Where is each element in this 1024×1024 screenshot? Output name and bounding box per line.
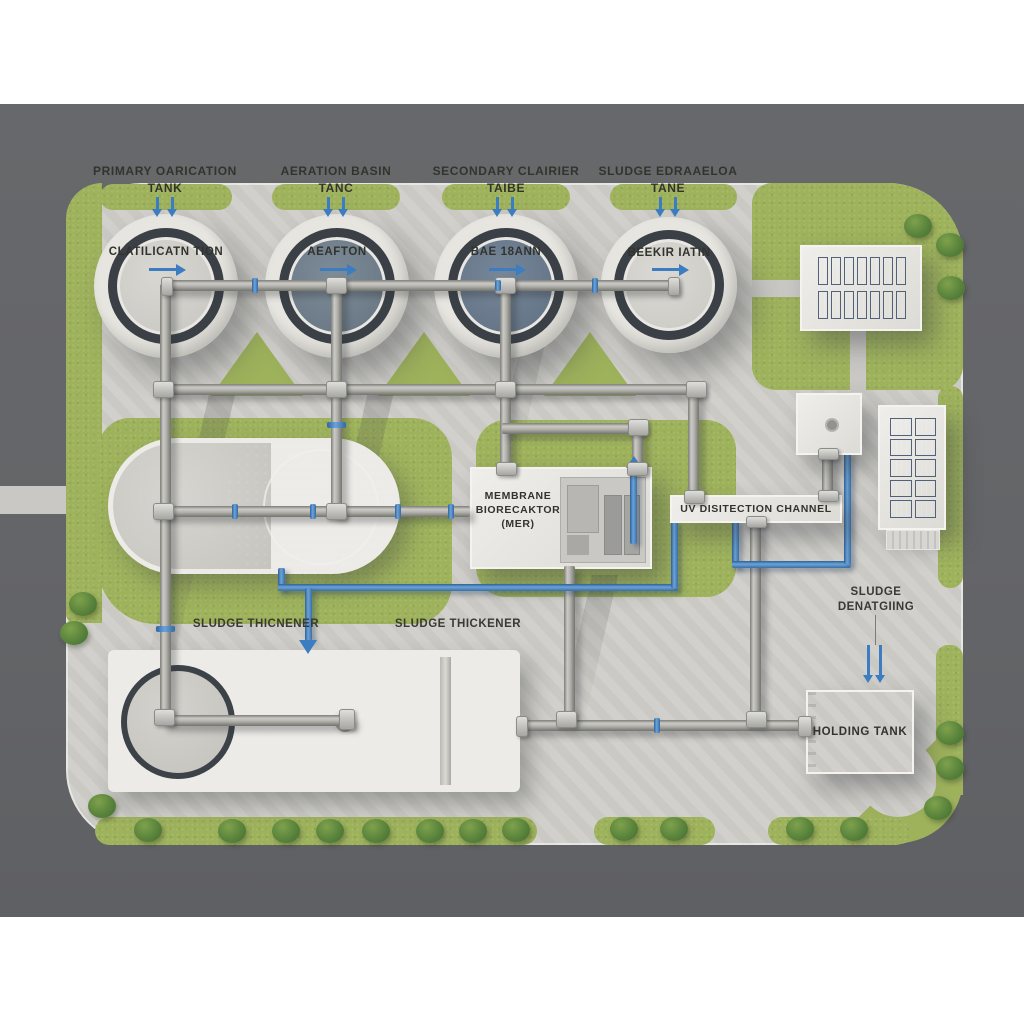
solar-panel [915, 418, 937, 436]
solar-panel [896, 257, 906, 285]
building-annex [886, 530, 940, 550]
bush-icon [459, 819, 487, 843]
label-line: TANK [148, 181, 183, 195]
bush-icon [936, 756, 964, 780]
pipe-joint [161, 277, 173, 296]
tank-label: BAE 18ANN [436, 246, 576, 258]
bush-icon [218, 819, 246, 843]
solar-panel [915, 480, 937, 498]
flow-arrow-right-icon [176, 264, 186, 276]
lawn-path-vertical [850, 330, 866, 392]
bush-icon [69, 592, 97, 616]
bush-icon [786, 817, 814, 841]
pipe-coupling [252, 278, 258, 293]
solar-building-north [800, 245, 922, 331]
uv-channel-label: UV DISITECTION CHANNEL [680, 503, 831, 515]
solar-panel [915, 459, 937, 477]
pipe-joint [686, 381, 707, 398]
bush-icon [134, 818, 162, 842]
label-line: SLUDGE [851, 586, 902, 598]
flow-arrow-right-icon [347, 264, 357, 276]
thickener-label-left: SLUDGE THICNENER [166, 618, 346, 630]
bush-icon [936, 721, 964, 745]
mbr-label: MEMBRANE BIORECAKTOR (MER) [474, 489, 562, 531]
mbr-membrane-cassette [604, 495, 622, 555]
membrane-bioreactor-unit: MEMBRANE BIORECAKTOR (MER) [470, 467, 652, 569]
solar-panel [818, 257, 828, 285]
solar-panel [890, 418, 912, 436]
solar-panel [915, 500, 937, 518]
pipe-joint [746, 516, 767, 528]
pipe-return-header [168, 384, 699, 395]
mbr-equipment-module [567, 535, 589, 555]
pipe-coupling [448, 504, 454, 519]
solar-panel [896, 291, 906, 319]
solar-panel [844, 291, 854, 319]
bush-icon [362, 819, 390, 843]
pipe-feed-to-mbr [162, 506, 470, 517]
pipe-joint [818, 448, 839, 460]
pipe-joint [339, 709, 355, 730]
bluepipe-run-east [278, 584, 678, 591]
bush-icon [660, 817, 688, 841]
solar-panel [890, 480, 912, 498]
solar-panel [890, 459, 912, 477]
flow-arrow-down-icon [655, 209, 665, 217]
lawn-path-horizontal [752, 280, 804, 297]
bush-icon [316, 819, 344, 843]
mbr-label-line2: BIORECAKTOR [476, 504, 561, 516]
bush-icon [502, 818, 530, 842]
pipe-joint [628, 419, 649, 436]
bluepipe-run-right [732, 561, 851, 568]
mbr-label-line3: (MER) [501, 518, 534, 530]
inlet-arrow-stem [867, 645, 870, 677]
bluepipe-mbr-riser [630, 468, 637, 544]
tank-label: CLATILICATN TION [96, 246, 236, 258]
pipe-drop-to-uv [688, 386, 699, 498]
flow-arrow-down-icon [167, 209, 177, 217]
pipe-joint [556, 711, 577, 728]
flow-arrow-down-icon [670, 209, 680, 217]
solar-panel [890, 500, 912, 518]
pipe-vertical-clarifier [500, 284, 511, 470]
pipe-tank-header [166, 280, 676, 291]
flow-arrow-down-icon [863, 675, 873, 683]
solar-panel [883, 257, 893, 285]
flow-arrow-down-icon [338, 209, 348, 217]
pipe-coupling [156, 626, 175, 632]
label-line: TAIBE [487, 181, 525, 195]
pipe-joint [326, 277, 347, 294]
pipe-joint [684, 490, 705, 504]
pipe-in-basin [162, 715, 354, 726]
tank-flow-arrow-stem [652, 268, 680, 271]
pipe-coupling [327, 422, 346, 428]
solar-panel [883, 291, 893, 319]
bush-icon [904, 214, 932, 238]
flow-arrow-down-icon [492, 209, 502, 217]
bush-icon [936, 233, 964, 257]
mbr-label-line1: MEMBRANE [485, 490, 552, 502]
solar-panel [915, 439, 937, 457]
solar-panel [818, 291, 828, 319]
dewatering-label: SLUDGE DENATGIING [816, 585, 936, 615]
dewatering-leader-line [875, 615, 876, 645]
pipe-joint [746, 711, 767, 728]
label-line: TANE [651, 181, 685, 195]
pipe-uv-outfall [750, 520, 761, 725]
bush-icon [60, 621, 88, 645]
pipe-joint [668, 277, 680, 296]
pipe-joint [153, 503, 174, 520]
solar-panel [870, 257, 880, 285]
bush-icon [416, 819, 444, 843]
thickener-label-right: SLUDGE THICKENER [368, 618, 548, 630]
holding-tank: HOLDING TANK [806, 690, 914, 774]
process-label-sludge: SLUDGE EDRAAELOA TANE [558, 163, 778, 197]
site-access-path [0, 486, 70, 514]
pipe-joint [818, 490, 839, 502]
flow-arrow-down-icon [152, 209, 162, 217]
label-line: TANC [319, 181, 354, 195]
pipe-coupling [495, 280, 501, 291]
bush-icon [272, 819, 300, 843]
flow-arrow-down-icon [299, 640, 317, 654]
pipe-vertical-aeration [331, 284, 342, 517]
bluepipe-up-to-uv [671, 520, 678, 588]
plant-aerial-diagram: CLATILICATN TION AEAFTON BAE 18ANN BEEKI… [0, 0, 1024, 1024]
label-line: SLUDGE EDRAAELOA [599, 164, 738, 178]
pipe-coupling [395, 504, 401, 519]
solar-array-row [818, 257, 906, 285]
solar-panel [831, 291, 841, 319]
flow-arrow-down-icon [875, 675, 885, 683]
pipe-coupling [654, 718, 660, 733]
flow-arrow-right-icon [516, 264, 526, 276]
bush-icon [610, 817, 638, 841]
pipe-coupling [592, 278, 598, 293]
pipe-coupling [232, 504, 238, 519]
flow-arrow-down-icon [323, 209, 333, 217]
pipe-joint [798, 716, 812, 737]
pipe-branch-to-mbr [502, 423, 640, 434]
pipe-joint [326, 381, 347, 398]
solar-panel [831, 257, 841, 285]
pipe-joint [153, 381, 174, 398]
pipe-joint [495, 381, 516, 398]
pipe-joint [326, 503, 347, 520]
bush-icon [937, 276, 965, 300]
solar-panel [844, 257, 854, 285]
solar-panel [890, 439, 912, 457]
solar-building-east [878, 405, 946, 530]
label-line: PRIMARY OARICATION [93, 164, 237, 178]
pipe-coupling [310, 504, 316, 519]
pipe-joint [627, 462, 648, 476]
flow-arrow-right-icon [679, 264, 689, 276]
pipe-joint [516, 716, 528, 737]
pipe-joint [154, 709, 175, 726]
solar-panel [870, 291, 880, 319]
solar-array-row [818, 291, 906, 319]
tank-flow-arrow-stem [489, 268, 517, 271]
bush-icon [840, 817, 868, 841]
bluepipe-branch-down [305, 588, 312, 641]
tank-label: AEAFTON [267, 246, 407, 258]
control-building [796, 393, 862, 455]
solar-array-grid [890, 418, 936, 518]
holding-tank-label: HOLDING TANK [813, 726, 908, 738]
tank-flow-arrow-stem [149, 268, 177, 271]
basin-divider-wall [440, 657, 451, 785]
roof-vent-icon [825, 418, 839, 432]
bush-icon [924, 796, 952, 820]
flow-arrow-down-icon [507, 209, 517, 217]
solar-panel [857, 291, 867, 319]
tank-flow-arrow-stem [320, 268, 348, 271]
inlet-arrow-stem [879, 645, 882, 677]
bush-icon [88, 794, 116, 818]
pipe-joint [496, 462, 517, 476]
tank-label: BEEKIR IATIN [599, 247, 739, 259]
bluepipe-up-to-building [844, 452, 851, 564]
label-line: AERATION BASIN [281, 164, 392, 178]
mbr-equipment-module [567, 485, 599, 533]
solar-panel [857, 257, 867, 285]
label-line: DENATGIING [838, 601, 914, 613]
